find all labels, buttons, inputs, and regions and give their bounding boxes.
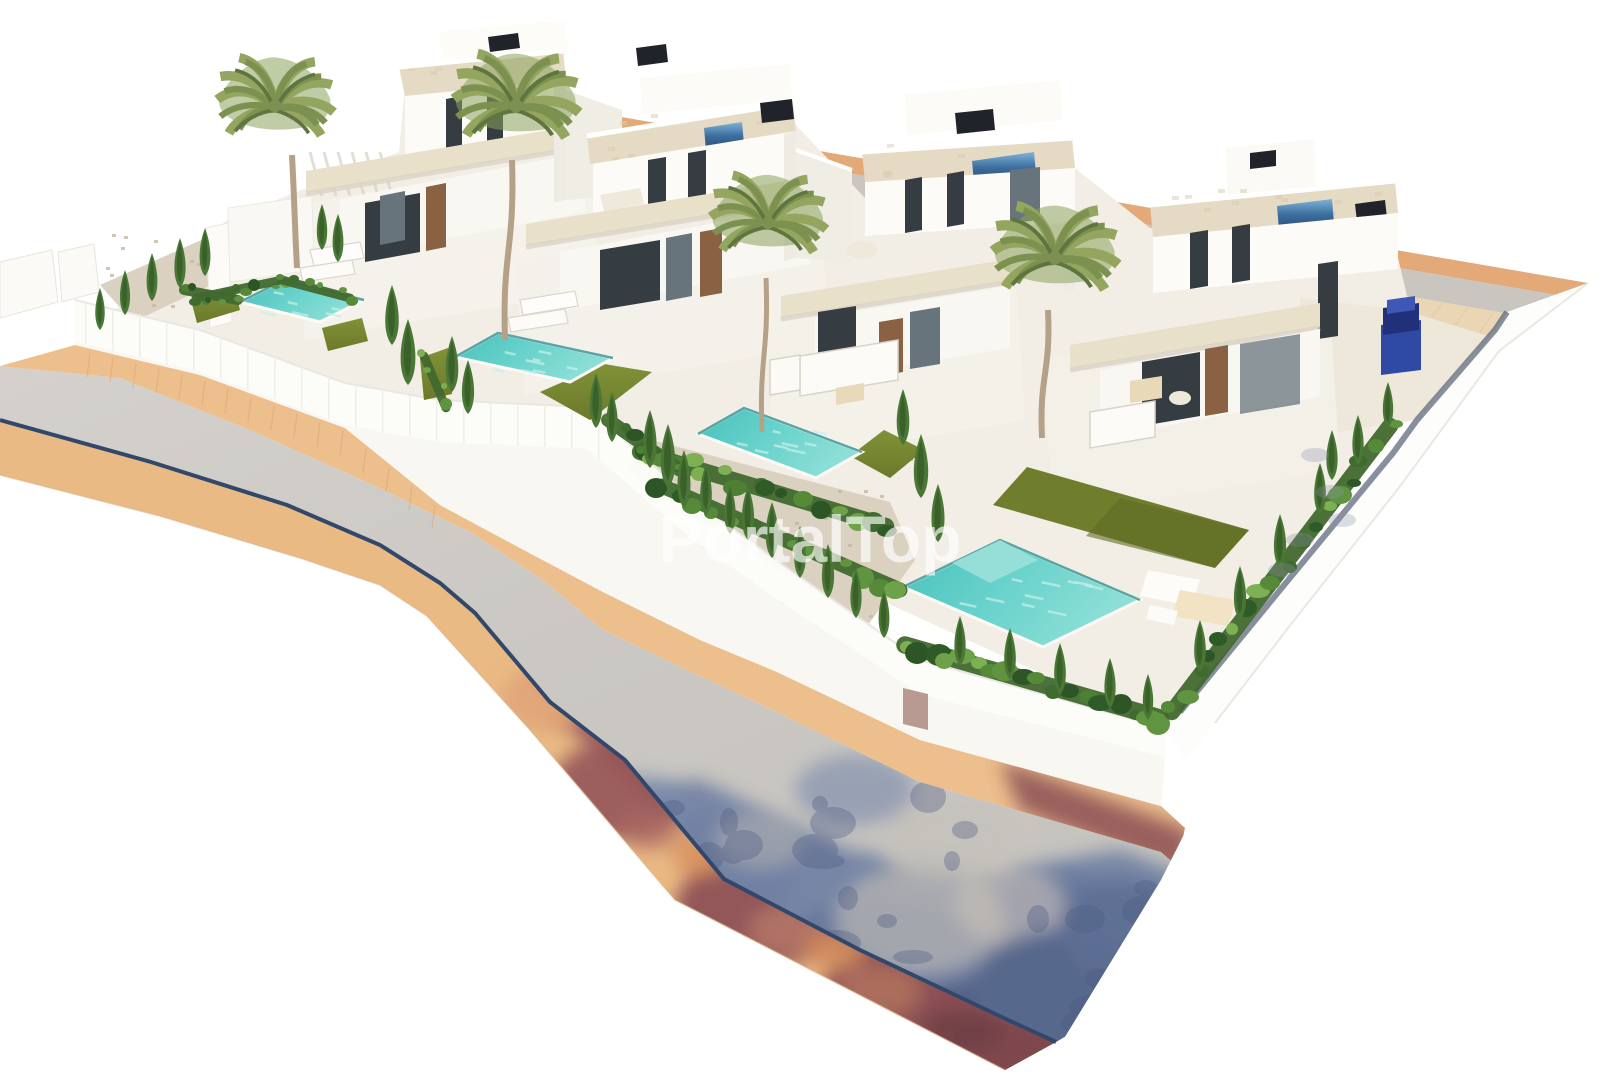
svg-text:PortalTop: PortalTop	[658, 502, 961, 576]
